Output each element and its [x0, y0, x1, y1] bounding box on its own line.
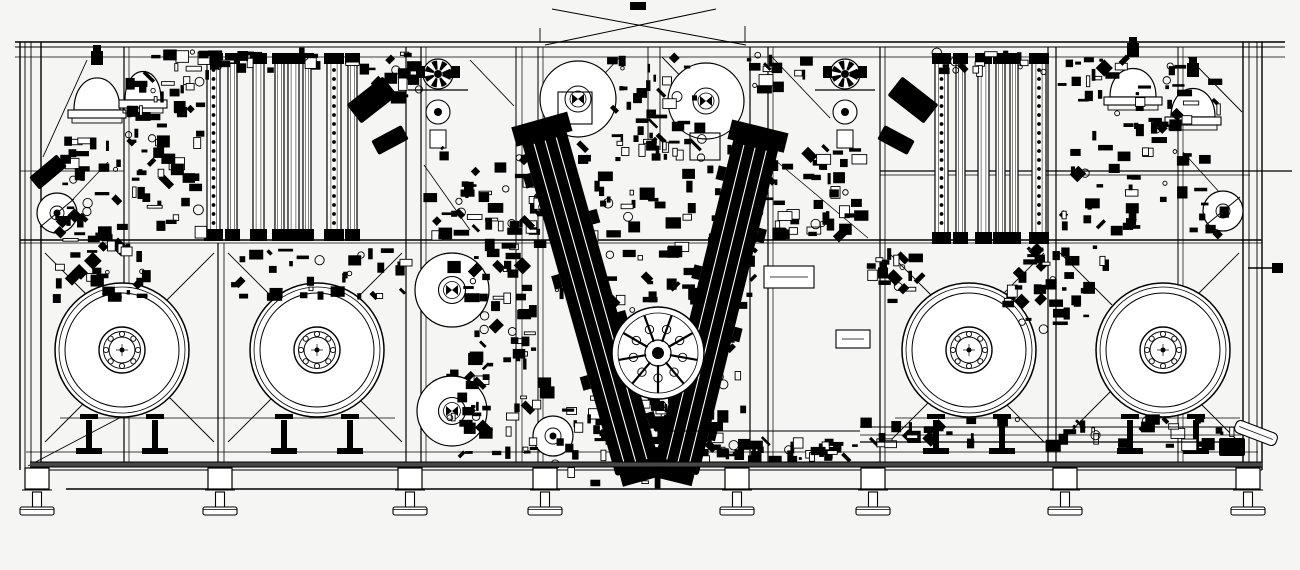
base-beam	[30, 462, 1262, 467]
angled-actuator	[877, 125, 915, 155]
cad-drawing-page	[0, 0, 1300, 570]
leveling-foot	[528, 507, 562, 515]
block	[630, 2, 646, 10]
leveling-foot	[856, 507, 890, 515]
rail-columns-left	[204, 53, 360, 241]
equipment-cluster-1	[54, 135, 207, 243]
machine-leg	[205, 468, 235, 507]
machine-leg	[1050, 468, 1080, 507]
control-box	[836, 330, 870, 348]
block	[1272, 263, 1283, 273]
large-reel-4	[1096, 283, 1230, 454]
angled-actuator	[887, 76, 938, 123]
machine-leg	[858, 468, 888, 507]
leveling-foot	[393, 507, 427, 515]
machine-leg	[1233, 468, 1263, 507]
leveling-foot	[20, 507, 54, 515]
large-reel-3	[902, 283, 1036, 454]
equipment-cluster-10	[747, 52, 813, 93]
angled-actuator	[371, 125, 409, 155]
machine-leg	[395, 468, 425, 507]
leveling-foot	[1048, 507, 1082, 515]
machine-assembly-drawing	[0, 0, 1300, 570]
large-reel-2	[250, 283, 384, 454]
equipment-cluster-15	[231, 248, 412, 301]
equipment-cluster-16	[867, 248, 926, 303]
process-turret	[612, 307, 704, 399]
leveling-foot	[203, 507, 237, 515]
control-box	[764, 266, 814, 288]
machine-leg	[722, 468, 752, 507]
leveling-foot	[720, 507, 754, 515]
rail-columns-right	[932, 53, 1049, 244]
large-reel-1	[55, 283, 189, 454]
angled-actuator	[1219, 438, 1245, 456]
machine-leg	[530, 468, 560, 507]
pulley-stack	[408, 59, 468, 148]
leveling-foot	[1231, 507, 1265, 515]
pulley-stack	[815, 59, 875, 148]
machine-leg	[22, 468, 52, 507]
